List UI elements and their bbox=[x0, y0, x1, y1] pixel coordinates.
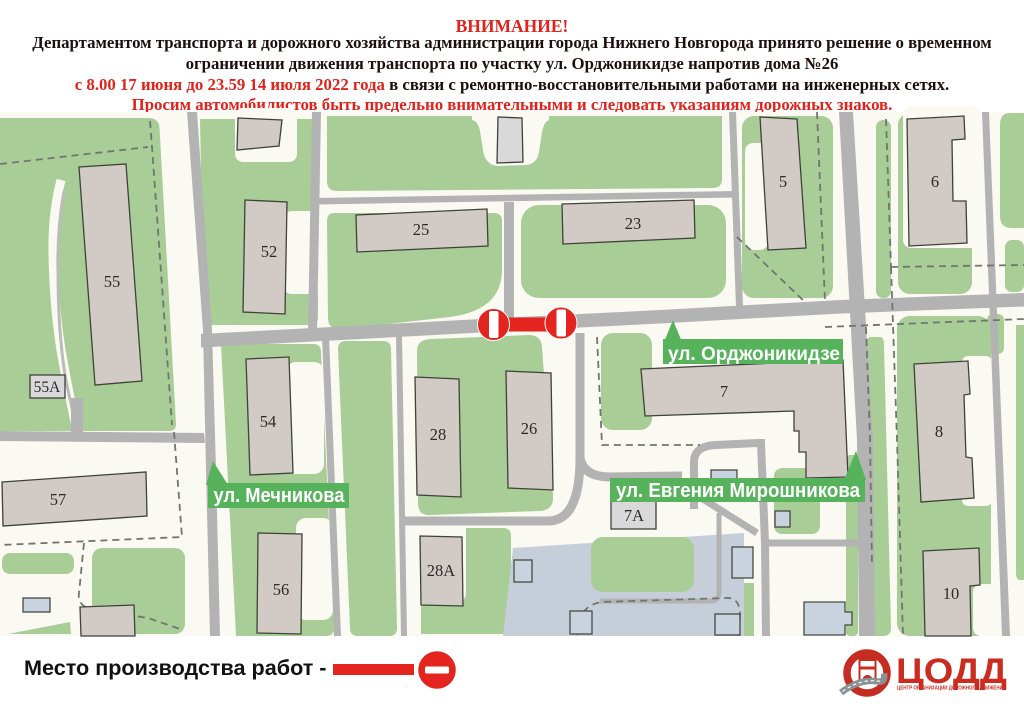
svg-text:57: 57 bbox=[50, 490, 67, 509]
svg-text:8: 8 bbox=[935, 422, 943, 441]
svg-text:55А: 55А bbox=[34, 379, 62, 396]
svg-text:28: 28 bbox=[430, 425, 447, 444]
svg-text:7А: 7А bbox=[624, 506, 644, 525]
svg-text:5: 5 bbox=[779, 172, 787, 191]
svg-text:56: 56 bbox=[273, 580, 290, 599]
svg-text:ЦЕНТР ОРГАНИЗАЦИИ ДОРОЖНОГО ДВ: ЦЕНТР ОРГАНИЗАЦИИ ДОРОЖНОГО ДВИЖЕНИЯ bbox=[897, 686, 1006, 692]
svg-text:25: 25 bbox=[413, 220, 430, 239]
svg-text:54: 54 bbox=[260, 412, 277, 431]
svg-text:ул. Мечникова: ул. Мечникова bbox=[214, 485, 346, 507]
svg-text:26: 26 bbox=[521, 419, 538, 438]
svg-text:52: 52 bbox=[261, 242, 278, 261]
svg-text:55: 55 bbox=[104, 272, 121, 291]
svg-text:23: 23 bbox=[625, 214, 642, 233]
svg-text:7: 7 bbox=[720, 382, 728, 401]
svg-text:ул. Орджоникидзе: ул. Орджоникидзе bbox=[668, 344, 840, 365]
svg-text:6: 6 bbox=[931, 172, 939, 191]
svg-text:28А: 28А bbox=[427, 561, 456, 580]
svg-text:10: 10 bbox=[943, 584, 960, 603]
svg-text:ул. Евгения Мирошникова: ул. Евгения Мирошникова bbox=[616, 480, 861, 502]
